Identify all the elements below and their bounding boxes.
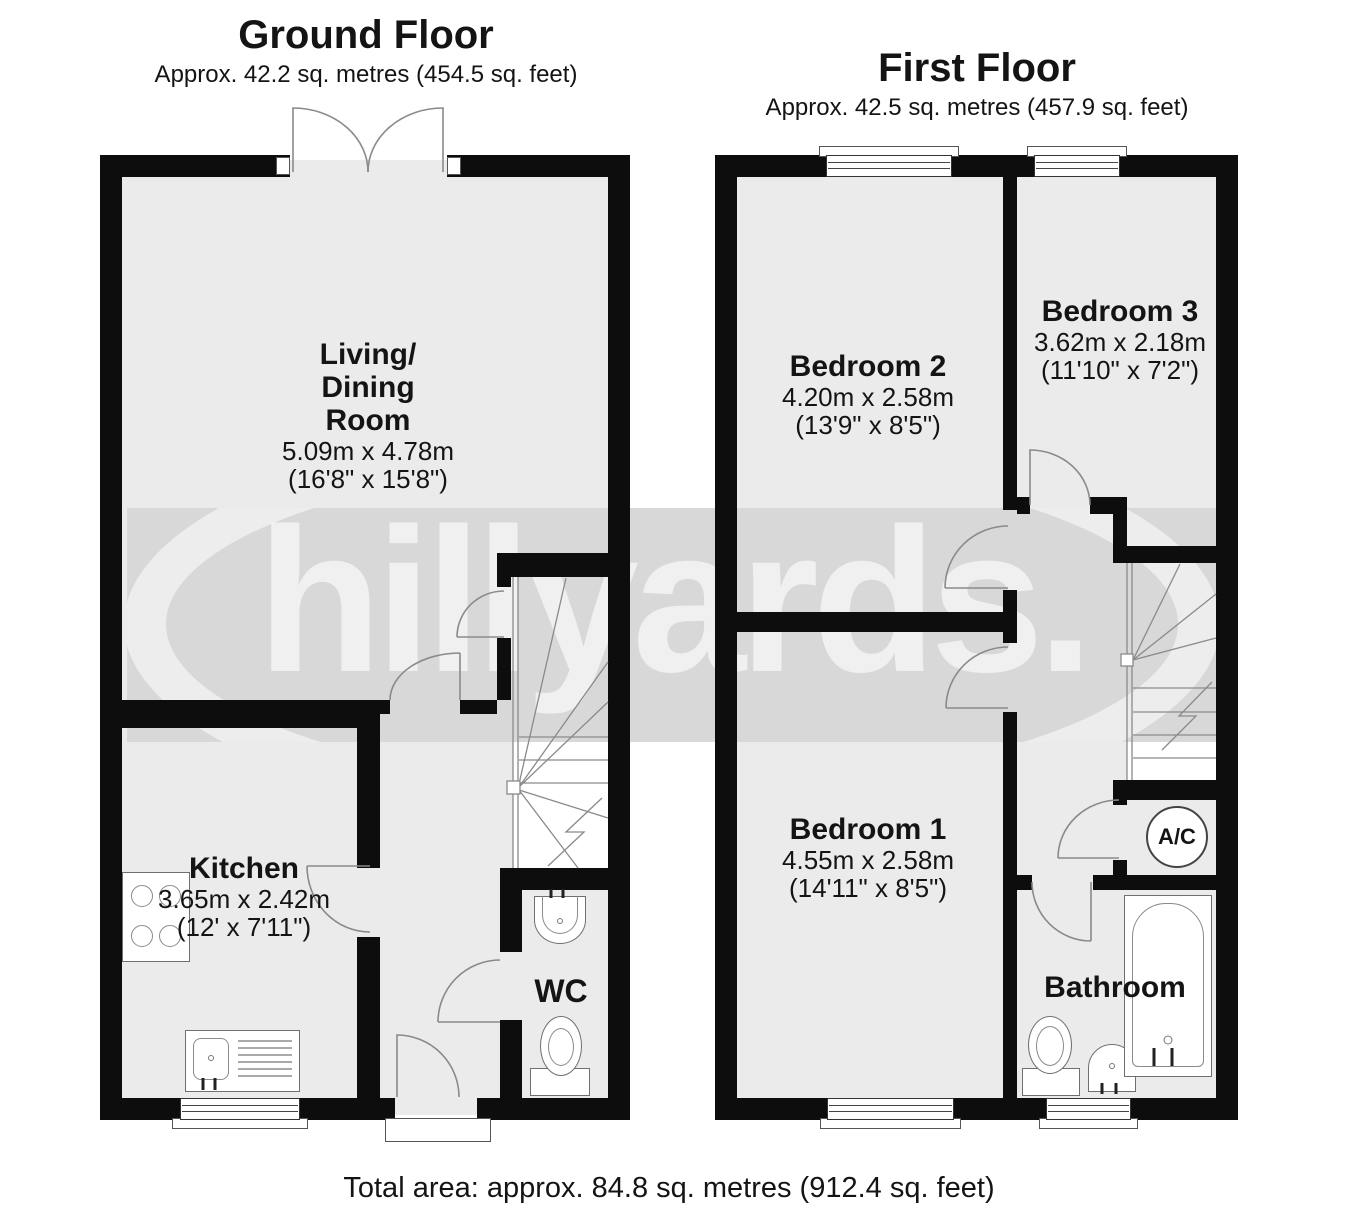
wall-segment [1131, 1098, 1238, 1120]
room-name: Living/ [282, 338, 454, 371]
wall-segment [447, 155, 630, 177]
ground-floor-subtitle: Approx. 42.2 sq. metres (454.5 sq. feet) [155, 61, 578, 89]
wall-segment [1003, 712, 1017, 1098]
ground-floor-title: Ground Floor [238, 13, 494, 58]
wc-toilet-bowl [548, 1028, 574, 1066]
wall-segment [1113, 780, 1216, 800]
watermark-text: hillyards. [122, 488, 1222, 714]
wall-segment [500, 868, 630, 890]
wall-segment [715, 1098, 827, 1120]
front-door-step [385, 1118, 491, 1142]
wall-segment [100, 1098, 180, 1120]
window [826, 155, 952, 177]
bedroom2-label: Bedroom 2 4.20m x 2.58m (13'9" x 8'5") [782, 350, 954, 439]
door-jamb [276, 157, 290, 175]
wall-segment [497, 553, 630, 577]
wall-segment [1017, 875, 1032, 890]
total-area-text: Total area: approx. 84.8 sq. metres (912… [343, 1172, 994, 1205]
room-name: Kitchen [158, 852, 330, 885]
hob-ring-icon [131, 925, 153, 947]
wall-segment [1017, 497, 1030, 514]
window [1034, 155, 1120, 177]
wall-segment [952, 155, 1034, 177]
wall-segment [1113, 780, 1127, 805]
bedroom1-label: Bedroom 1 4.55m x 2.58m (14'11" x 8'5") [782, 813, 954, 902]
wall-segment [300, 1098, 395, 1120]
first-floor-title: First Floor [878, 46, 1076, 91]
kitchen-label: Kitchen 3.65m x 2.42m (12' x 7'11") [158, 852, 330, 941]
wall-segment [100, 155, 290, 177]
room-dimensions-imperial: (11'10" x 7'2") [1034, 356, 1206, 384]
wall-segment [460, 700, 497, 714]
room-name: Dining [282, 371, 454, 404]
wall-segment [608, 155, 630, 1120]
bedroom3-label: Bedroom 3 3.62m x 2.18m (11'10" x 7'2") [1034, 295, 1206, 384]
window [1046, 1098, 1131, 1120]
wall-segment [357, 700, 380, 868]
room-name: Bedroom 2 [782, 350, 954, 383]
wall-segment [357, 937, 380, 1098]
wall-segment [500, 1020, 522, 1098]
living-dining-label: Living/ Dining Room 5.09m x 4.78m (16'8"… [282, 338, 454, 493]
first-floor-subtitle: Approx. 42.5 sq. metres (457.9 sq. feet) [766, 94, 1189, 122]
wall-segment [497, 638, 511, 700]
wall-segment [1216, 155, 1238, 1120]
wall-segment [380, 700, 390, 714]
wc-sink-bowl [542, 896, 578, 934]
room-name: Bedroom 1 [782, 813, 954, 846]
room-dimensions-metric: 4.20m x 2.58m [782, 383, 954, 411]
wall-segment [715, 155, 737, 1120]
room-dimensions-imperial: (14'11" x 8'5") [782, 874, 954, 902]
wall-segment [100, 155, 122, 1120]
wall-segment [715, 612, 1003, 632]
kitchen-sink-basin [193, 1038, 229, 1080]
floorplan-canvas: hillyards. [0, 0, 1350, 1232]
wall-segment [954, 1098, 1046, 1120]
room-dimensions-imperial: (12' x 7'11") [158, 913, 330, 941]
wall-segment [100, 700, 380, 728]
room-dimensions-metric: 3.65m x 2.42m [158, 885, 330, 913]
bathroom-toilet-bowl [1036, 1026, 1064, 1066]
room-name: Bedroom 3 [1034, 295, 1206, 328]
wall-segment [1003, 590, 1017, 643]
wall-segment [477, 1098, 630, 1120]
window [180, 1098, 300, 1120]
window [827, 1098, 954, 1120]
wall-segment [500, 890, 522, 952]
room-dimensions-metric: 4.55m x 2.58m [782, 846, 954, 874]
wall-segment [1113, 546, 1216, 563]
wall-segment [1093, 875, 1216, 890]
room-name: Room [282, 404, 454, 437]
room-dimensions-metric: 5.09m x 4.78m [282, 437, 454, 465]
hob-ring-icon [131, 885, 153, 907]
room-dimensions-metric: 3.62m x 2.18m [1034, 328, 1206, 356]
room-dimensions-imperial: (13'9" x 8'5") [782, 411, 954, 439]
bathroom-label: Bathroom [1044, 971, 1186, 1004]
wall-segment [1090, 497, 1113, 514]
wall-segment [497, 577, 511, 587]
ac-label: A/C [1158, 824, 1196, 850]
door-jamb [447, 157, 461, 175]
wall-segment [1003, 177, 1017, 510]
wc-label: WC [534, 975, 587, 1008]
room-dimensions-imperial: (16'8" x 15'8") [282, 465, 454, 493]
